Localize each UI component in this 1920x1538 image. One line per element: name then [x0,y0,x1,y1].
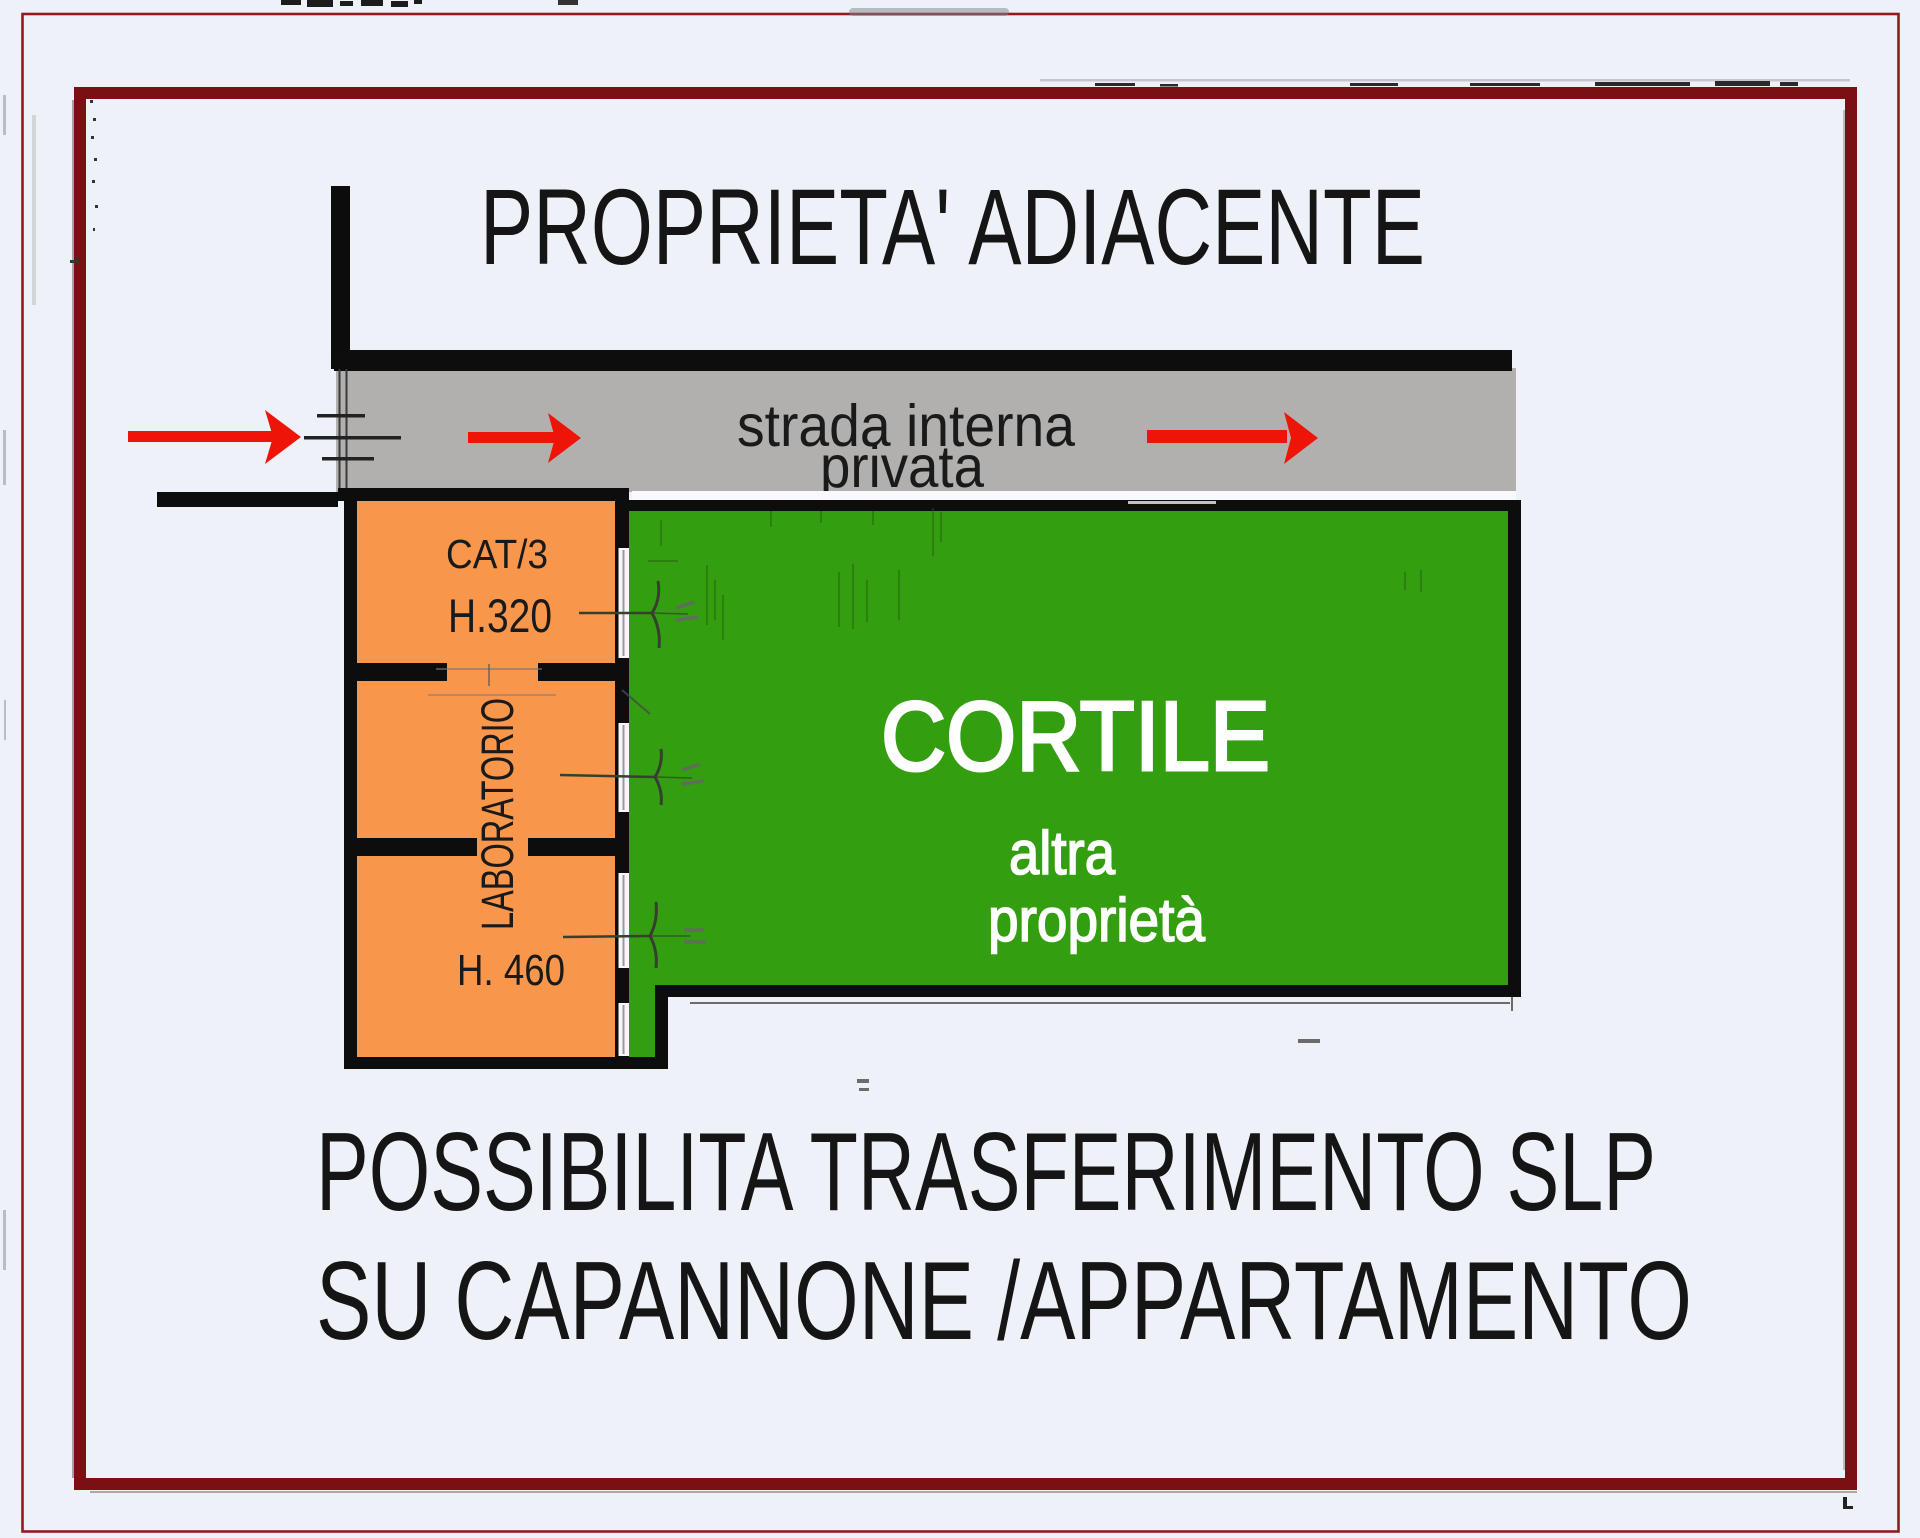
svg-text:H.320: H.320 [448,589,552,642]
svg-text:LABORATORIO: LABORATORIO [472,698,523,930]
svg-text:CAT/3: CAT/3 [446,531,548,577]
svg-text:proprietà: proprietà [988,886,1205,954]
svg-text:POSSIBILITA TRASFERIMENTO SLP: POSSIBILITA TRASFERIMENTO SLP [316,1110,1656,1234]
svg-text:PROPRIETA' ADIACENTE: PROPRIETA' ADIACENTE [480,166,1425,287]
svg-text:altra: altra [1009,819,1115,887]
svg-text:H. 460: H. 460 [457,946,565,995]
svg-text:CORTILE: CORTILE [881,681,1270,791]
svg-text:SU CAPANNONE /APPARTAMENTO: SU CAPANNONE /APPARTAMENTO [316,1239,1692,1363]
svg-text:privata: privata [820,434,984,500]
